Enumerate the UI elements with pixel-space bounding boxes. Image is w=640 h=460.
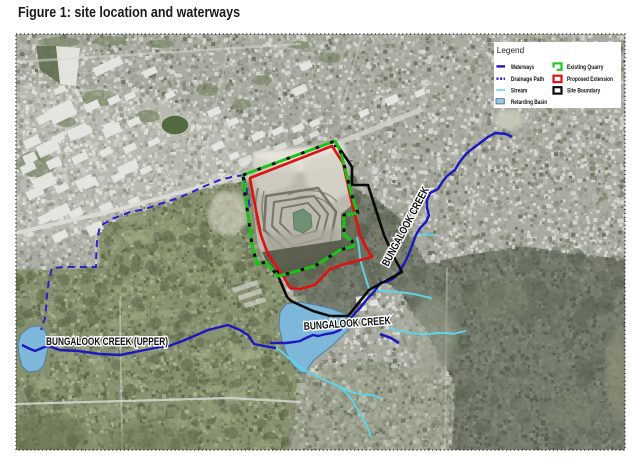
svg-text:Drainage Path: Drainage Path xyxy=(511,76,544,83)
svg-text:Existing Quarry: Existing Quarry xyxy=(567,64,604,71)
svg-text:Proposed Extension: Proposed Extension xyxy=(567,76,613,83)
svg-text:Retarding Basin: Retarding Basin xyxy=(511,99,547,106)
svg-text:Legend: Legend xyxy=(497,46,525,55)
svg-text:Stream: Stream xyxy=(511,87,528,94)
svg-text:Waterways: Waterways xyxy=(511,64,534,71)
svg-text:BUNGALOOK CREEK (UPPER): BUNGALOOK CREEK (UPPER) xyxy=(46,336,168,348)
svg-text:Site Boundary: Site Boundary xyxy=(567,88,600,95)
